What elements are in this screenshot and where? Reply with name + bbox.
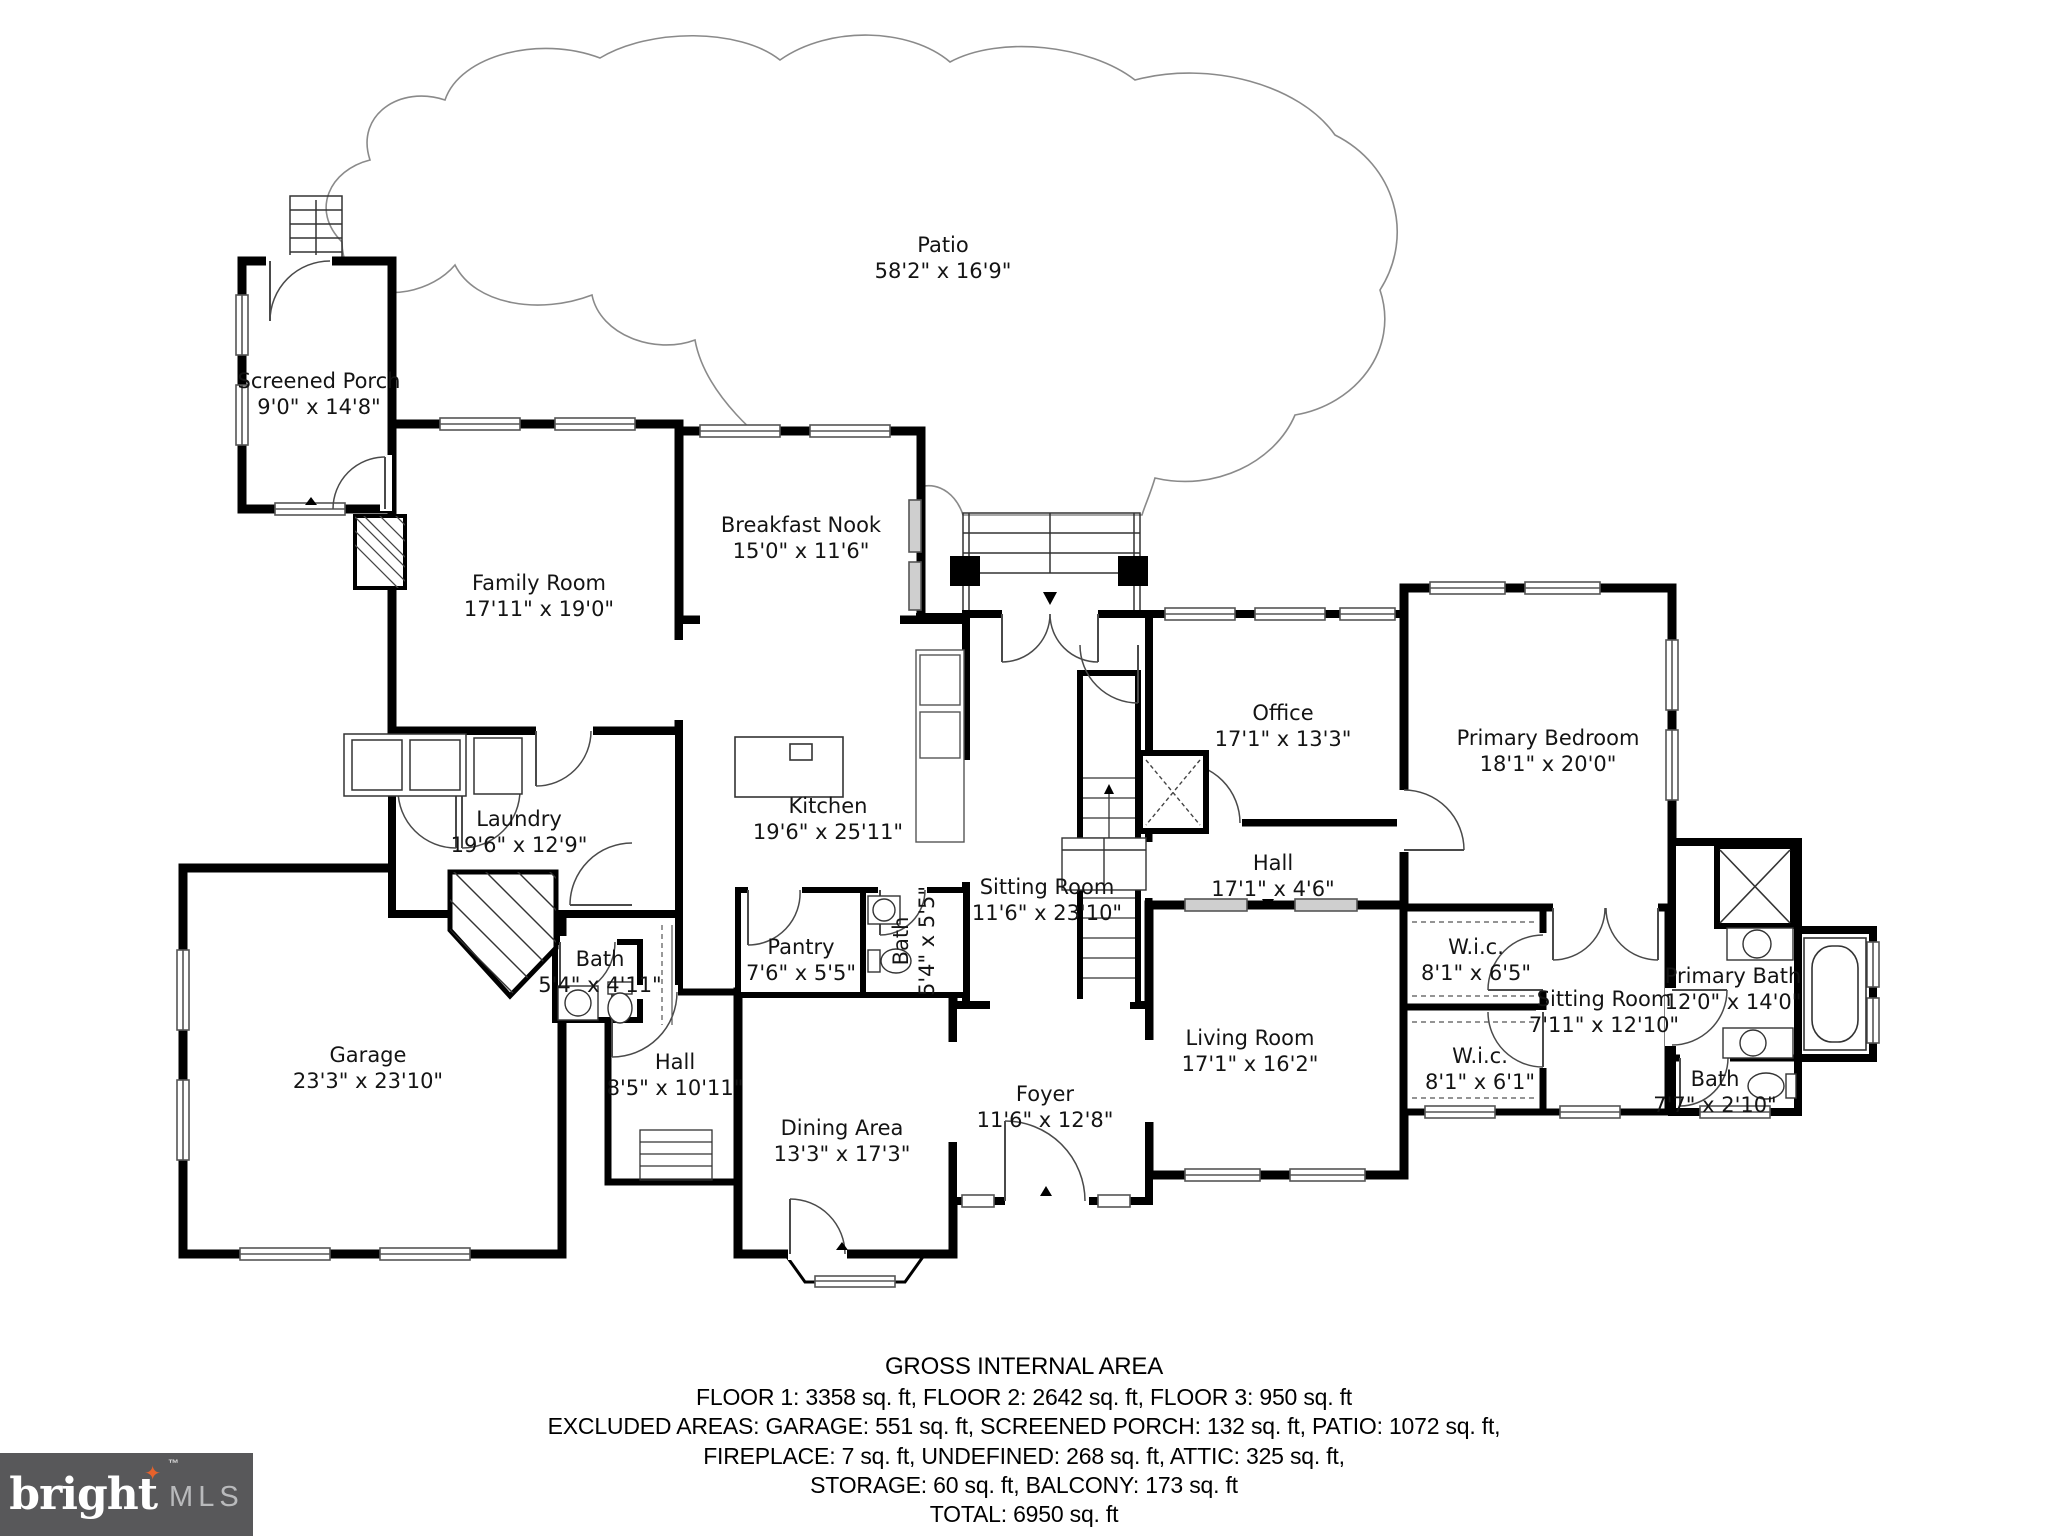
room-label-sitting-room-primary: Sitting Room7'11" x 12'10" (1529, 986, 1679, 1039)
window-icon (810, 425, 890, 437)
window-icon (1255, 608, 1325, 620)
room-label-living-room: Living Room17'1" x 16'2" (1182, 1025, 1319, 1078)
bathtub-icon (1804, 938, 1866, 1050)
window-icon (1425, 1106, 1495, 1118)
kitchen-counter-icon (916, 650, 964, 842)
room-label-wic-upper: W.i.c.8'1" x 6'5" (1421, 934, 1531, 987)
deck-stairs-icon (963, 513, 1140, 613)
window-icon (1666, 640, 1678, 710)
room-label-primary-bath: Primary Bath12'0" x 14'0" (1665, 963, 1802, 1016)
window-icon (1185, 1169, 1260, 1181)
window-icon (1340, 608, 1395, 620)
kitchen-island-icon (735, 737, 843, 797)
gross-internal-area-summary: GROSS INTERNAL AREA FLOOR 1: 3358 sq. ft… (324, 1352, 1724, 1536)
window-icon (815, 1276, 895, 1287)
window-icon (1098, 1195, 1130, 1207)
window-icon (1525, 582, 1600, 594)
room-label-primary-bedroom: Primary Bedroom18'1" x 20'0" (1457, 725, 1640, 778)
sparkle-icon: ✦ (144, 1463, 161, 1483)
room-label-bath-small: Bath7'7" x 2'10" (1653, 1066, 1776, 1119)
window-icon (1666, 730, 1678, 800)
room-label-garage: Garage23'3" x 23'10" (293, 1042, 443, 1095)
room-label-patio: Patio58'2" x 16'9" (875, 232, 1012, 285)
floor-plan-page: Patio58'2" x 16'9" Screened Porch9'0" x … (0, 0, 2048, 1536)
floor-plan-drawing (0, 0, 2048, 1536)
window-icon (1290, 1169, 1365, 1181)
footer-title: GROSS INTERNAL AREA (324, 1352, 1724, 1383)
room-label-breakfast-nook: Breakfast Nook15'0" x 11'6" (721, 512, 881, 565)
window-icon (1560, 1106, 1620, 1118)
footer-excluded-1: EXCLUDED AREAS: GARAGE: 551 sq. ft, SCRE… (324, 1412, 1724, 1441)
room-label-sitting-room: Sitting Room11'6" x 23'10" (972, 874, 1122, 927)
room-label-wic-lower: W.i.c.8'1" x 6'1" (1425, 1043, 1535, 1096)
window-icon (1867, 998, 1879, 1043)
room-label-hall-upper: Hall17'1" x 4'6" (1211, 850, 1334, 903)
window-icon (555, 418, 635, 430)
shower-icon (1717, 846, 1793, 926)
window-icon (240, 1248, 330, 1260)
window-icon (440, 418, 520, 430)
vanity-sink-icon (1723, 1028, 1793, 1058)
washer-dryer-icon (344, 734, 522, 796)
footer-floors: FLOOR 1: 3358 sq. ft, FLOOR 2: 2642 sq. … (324, 1383, 1724, 1412)
room-label-office: Office17'1" x 13'3" (1215, 700, 1352, 753)
logo-wordmark: bright✦™ (9, 1473, 157, 1517)
vanity-sink-icon (1727, 928, 1793, 960)
window-icon (177, 1080, 189, 1160)
brand-logo: bright✦™ MLS (0, 1453, 253, 1536)
window-icon (1867, 942, 1879, 987)
room-label-kitchen: Kitchen19'6" x 25'11" (753, 793, 903, 846)
window-icon (1430, 582, 1505, 594)
elevator-icon (1140, 753, 1206, 831)
footer-total: TOTAL: 6950 sq. ft (324, 1500, 1724, 1529)
window-icon (700, 425, 780, 437)
room-label-bath-kitchen: Bath5'4" x 5'5" (888, 886, 941, 996)
window-icon (380, 1248, 470, 1260)
window-icon (909, 562, 921, 610)
window-icon (962, 1195, 994, 1207)
window-icon (177, 950, 189, 1030)
window-icon (1165, 608, 1235, 620)
room-label-pantry: Pantry7'6" x 5'5" (746, 934, 856, 987)
room-label-bath-laundry: Bath5'4" x 4'11" (538, 946, 661, 999)
footer-excluded-2: FIREPLACE: 7 sq. ft, UNDEFINED: 268 sq. … (324, 1442, 1724, 1471)
deck-post (1118, 556, 1148, 586)
room-label-family-room: Family Room17'11" x 19'0" (464, 570, 614, 623)
room-label-laundry: Laundry19'6" x 12'9" (451, 806, 588, 859)
room-label-foyer: Foyer11'6" x 12'8" (977, 1081, 1114, 1134)
room-label-hall-lower: Hall8'5" x 10'11" (607, 1049, 744, 1102)
window-icon (236, 295, 248, 355)
room-label-dining-area: Dining Area13'3" x 17'3" (774, 1115, 911, 1168)
trademark-symbol: ™ (168, 1459, 179, 1470)
room-label-screened-porch: Screened Porch9'0" x 14'8" (238, 368, 401, 421)
footer-excluded-3: STORAGE: 60 sq. ft, BALCONY: 173 sq. ft (324, 1471, 1724, 1500)
logo-mls-text: MLS (169, 1475, 244, 1514)
deck-post (950, 556, 980, 586)
window-icon (909, 500, 921, 552)
